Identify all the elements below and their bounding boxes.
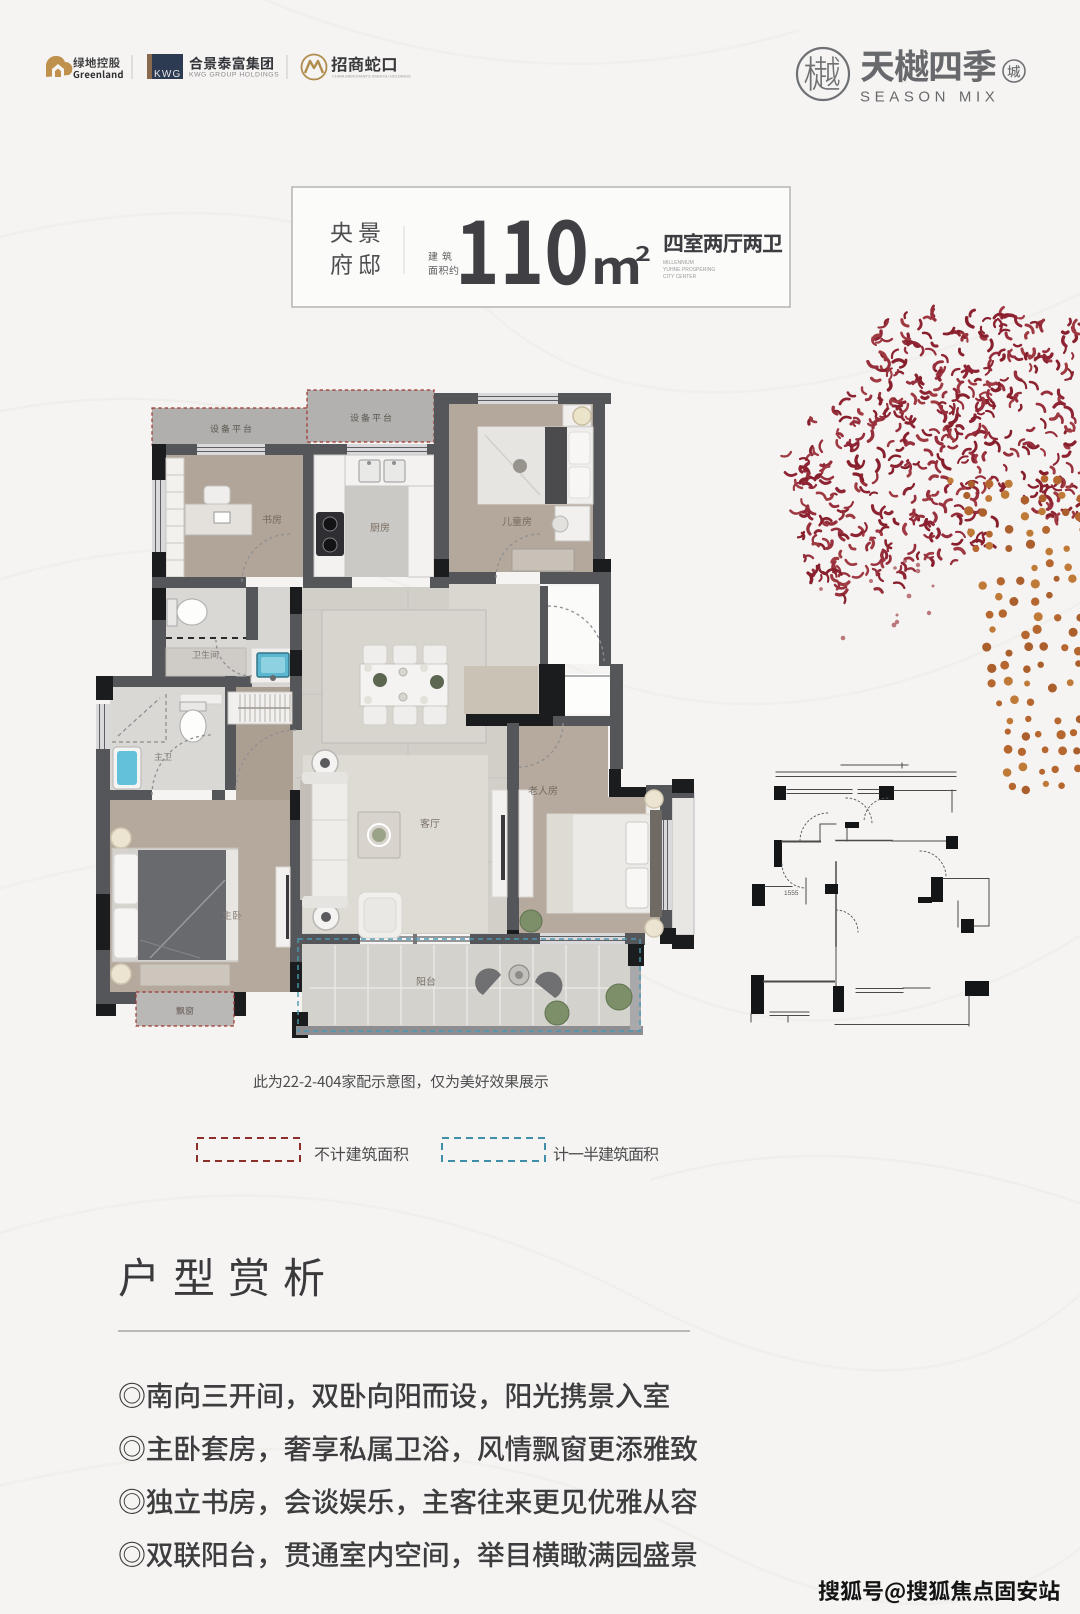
svg-text:CITY CENTER: CITY CENTER (663, 274, 697, 280)
svg-text:CHINA MERCHANTS SHEKOU HOLDING: CHINA MERCHANTS SHEKOU HOLDINGS (332, 74, 411, 79)
svg-text:YUHNE PROSPERING: YUHNE PROSPERING (663, 267, 715, 273)
svg-text:SEASON MIX: SEASON MIX (860, 89, 999, 106)
svg-text:1555: 1555 (784, 890, 799, 897)
svg-text:MILLENNIUM: MILLENNIUM (663, 260, 694, 266)
svg-text:KWG GROUP HOLDINGS: KWG GROUP HOLDINGS (189, 72, 279, 79)
svg-text:KWG: KWG (154, 69, 182, 80)
